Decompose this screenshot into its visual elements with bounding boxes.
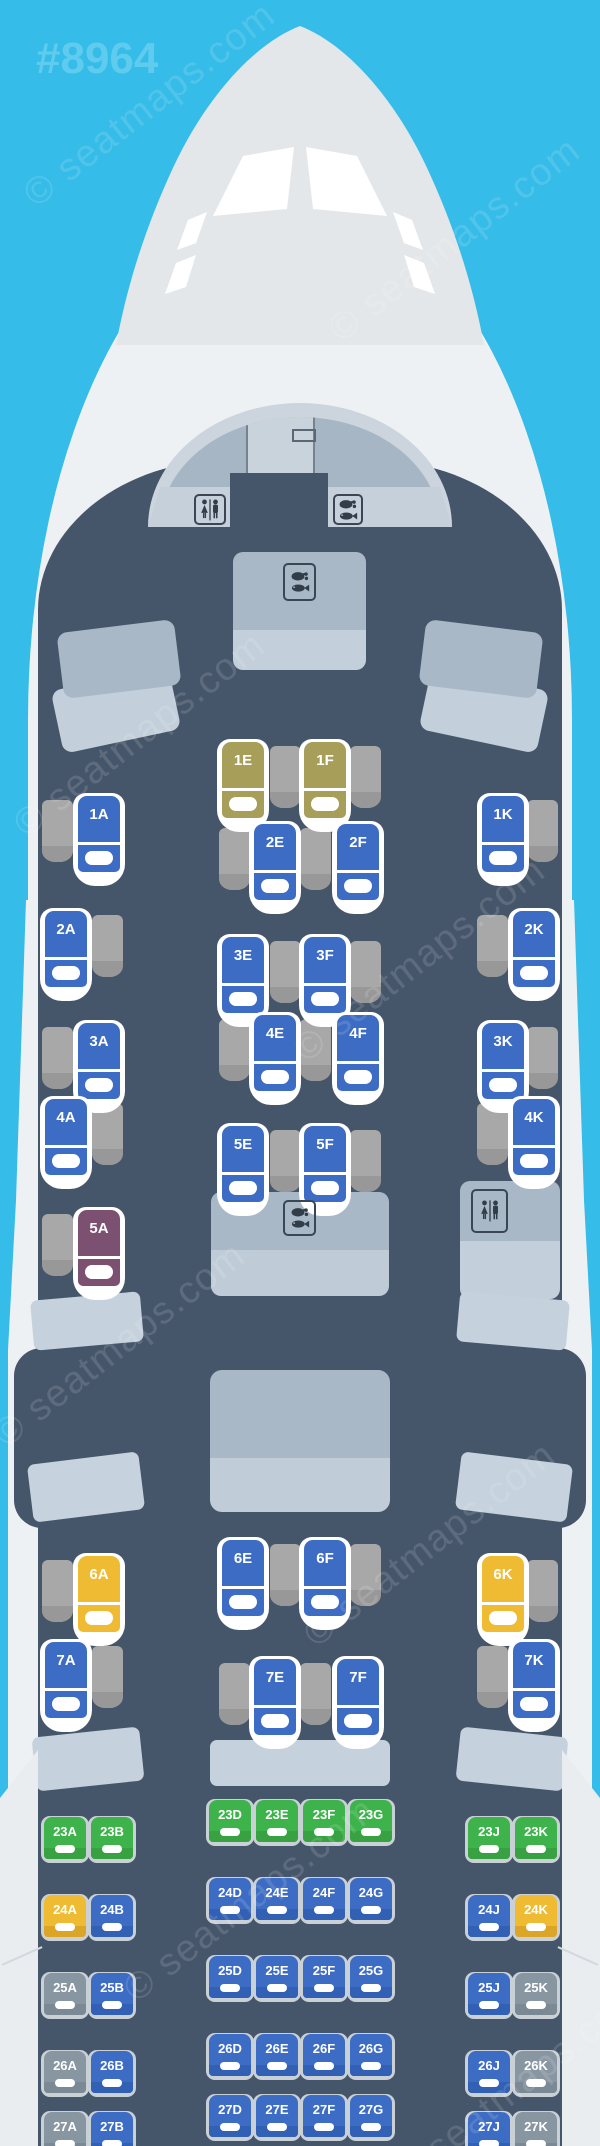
partition-right-mid (456, 1291, 570, 1350)
seat-26D[interactable]: 26D (209, 2034, 251, 2076)
seat-24E[interactable]: 24E (256, 1878, 298, 1920)
seat-label: 5A (78, 1220, 120, 1237)
seat-label: 6E (222, 1550, 264, 1567)
side-table (477, 1646, 508, 1708)
seat-3F[interactable]: 3F (304, 937, 346, 1013)
seat-27A[interactable]: 27A (44, 2112, 86, 2146)
seat-footrest (229, 797, 257, 811)
seat-tray (526, 2001, 546, 2009)
seat-7A[interactable]: 7A (45, 1642, 87, 1718)
seat-25F[interactable]: 25F (303, 1956, 345, 1998)
seat-23K[interactable]: 23K (515, 1817, 557, 1859)
seat-label: 23B (91, 1824, 133, 1839)
seat-footrest (261, 1070, 289, 1084)
seat-tray (55, 2079, 75, 2087)
seat-5F[interactable]: 5F (304, 1126, 346, 1202)
seat-label: 24K (515, 1902, 557, 1917)
seat-1F[interactable]: 1F (304, 742, 346, 818)
lavatory-sign (194, 494, 226, 525)
seat-3E[interactable]: 3E (222, 937, 264, 1013)
seat-label: 25B (91, 1980, 133, 1995)
seat-tray (361, 2123, 381, 2131)
seat-footrest (311, 1595, 339, 1609)
seat-24B[interactable]: 24B (91, 1895, 133, 1937)
entry-aisle (230, 473, 328, 529)
seat-label: 4K (513, 1109, 555, 1126)
seat-footrest (85, 1265, 113, 1279)
seat-26G[interactable]: 26G (350, 2034, 392, 2076)
seat-footrest (489, 1611, 517, 1625)
seat-label: 24J (468, 1902, 510, 1917)
door2-console-center (210, 1370, 390, 1458)
map-id: #8964 (36, 34, 158, 84)
seat-label: 1A (78, 806, 120, 823)
seat-label: 25A (44, 1980, 86, 1995)
seat-label: 27K (515, 2119, 557, 2134)
seat-26K[interactable]: 26K (515, 2051, 557, 2093)
seat-label: 5F (304, 1136, 346, 1153)
seat-tray (55, 1923, 75, 1931)
seat-footrest (229, 1181, 257, 1195)
seat-footrest (229, 992, 257, 1006)
seat-label: 23J (468, 1824, 510, 1839)
seat-27J[interactable]: 27J (468, 2112, 510, 2146)
seat-label: 4F (337, 1025, 379, 1042)
seat-label: 27D (209, 2102, 251, 2117)
seat-1E[interactable]: 1E (222, 742, 264, 818)
seat-label: 2F (337, 834, 379, 851)
seat-27B[interactable]: 27B (91, 2112, 133, 2146)
galley-food-icon (289, 1206, 311, 1230)
seat-tray (361, 1984, 381, 1992)
seat-label: 3F (304, 947, 346, 964)
seat-tray (479, 1923, 499, 1931)
seat-tray (361, 1828, 381, 1836)
seat-24G[interactable]: 24G (350, 1878, 392, 1920)
seat-7E[interactable]: 7E (254, 1659, 296, 1735)
door2-console-center-base (210, 1458, 390, 1512)
seat-2K[interactable]: 2K (513, 911, 555, 987)
seat-tray (314, 2123, 334, 2131)
seat-tray (526, 2079, 546, 2087)
wing-right (562, 1750, 600, 2146)
seat-1A[interactable]: 1A (78, 796, 120, 872)
seat-footrest (344, 1714, 372, 1728)
seat-label: 3A (78, 1033, 120, 1050)
seat-label: 25J (468, 1980, 510, 1995)
seat-label: 24F (303, 1885, 345, 1900)
seat-footrest (311, 992, 339, 1006)
side-table (527, 1560, 558, 1622)
seat-footrest (489, 851, 517, 865)
side-table (270, 1544, 301, 1606)
seat-tray (479, 2079, 499, 2087)
seat-26F[interactable]: 26F (303, 2034, 345, 2076)
seat-label: 23A (44, 1824, 86, 1839)
seat-footrest (85, 1611, 113, 1625)
seat-footrest (520, 1697, 548, 1711)
seat-tray (361, 2062, 381, 2070)
seat-label: 27E (256, 2102, 298, 2117)
seat-27F[interactable]: 27F (303, 2095, 345, 2137)
side-table (350, 1544, 381, 1606)
seat-26A[interactable]: 26A (44, 2051, 86, 2093)
seat-23J[interactable]: 23J (468, 1817, 510, 1859)
seat-label: 7F (337, 1669, 379, 1686)
seat-footrest (311, 1181, 339, 1195)
side-table (219, 828, 250, 890)
seat-25K[interactable]: 25K (515, 1973, 557, 2015)
seat-footrest (52, 1697, 80, 1711)
seat-25B[interactable]: 25B (91, 1973, 133, 2015)
seat-27K[interactable]: 27K (515, 2112, 557, 2146)
seat-label: 27G (350, 2102, 392, 2117)
seat-26J[interactable]: 26J (468, 2051, 510, 2093)
wing-left (0, 1750, 38, 2146)
seat-4F[interactable]: 4F (337, 1015, 379, 1091)
seat-label: 26K (515, 2058, 557, 2073)
seat-tray (314, 1906, 334, 1914)
seat-tray (55, 2001, 75, 2009)
front-galley-block-base (233, 630, 366, 670)
seat-tray (267, 1906, 287, 1914)
seat-footrest (261, 1714, 289, 1728)
seat-6E[interactable]: 6E (222, 1540, 264, 1616)
seat-tray (314, 1828, 334, 1836)
seat-label: 5E (222, 1136, 264, 1153)
seat-label: 26G (350, 2041, 392, 2056)
seat-tray (220, 1828, 240, 1836)
seat-24K[interactable]: 24K (515, 1895, 557, 1937)
seat-tray (220, 1906, 240, 1914)
side-table (300, 828, 331, 890)
side-table (527, 800, 558, 862)
seat-label: 25E (256, 1963, 298, 1978)
seat-footrest (344, 1070, 372, 1084)
side-table (270, 941, 301, 1003)
seat-footrest (520, 1154, 548, 1168)
seat-footrest (229, 1595, 257, 1609)
seat-5E[interactable]: 5E (222, 1126, 264, 1202)
seat-25D[interactable]: 25D (209, 1956, 251, 1998)
seat-26E[interactable]: 26E (256, 2034, 298, 2076)
partition-left-mid (30, 1291, 144, 1350)
seat-7K[interactable]: 7K (513, 1642, 555, 1718)
seat-label: 27J (468, 2119, 510, 2134)
side-table (477, 915, 508, 977)
seat-footrest (52, 966, 80, 980)
mid-galley-block-base (211, 1250, 389, 1296)
galley-food-icon (289, 570, 311, 594)
lavatory-block-right-base (460, 1241, 560, 1299)
seat-tray (479, 1845, 499, 1853)
seat-6K[interactable]: 6K (482, 1556, 524, 1632)
seat-tray (102, 1923, 122, 1931)
seat-label: 26E (256, 2041, 298, 2056)
seat-23E[interactable]: 23E (256, 1800, 298, 1842)
seat-6A[interactable]: 6A (78, 1556, 120, 1632)
seat-24J[interactable]: 24J (468, 1895, 510, 1937)
seat-5A[interactable]: 5A (78, 1210, 120, 1286)
seat-4E[interactable]: 4E (254, 1015, 296, 1091)
seat-25E[interactable]: 25E (256, 1956, 298, 1998)
seat-23B[interactable]: 23B (91, 1817, 133, 1859)
side-table (350, 941, 381, 1003)
seat-23A[interactable]: 23A (44, 1817, 86, 1859)
seat-footrest (52, 1154, 80, 1168)
seat-4A[interactable]: 4A (45, 1099, 87, 1175)
seat-label: 25G (350, 1963, 392, 1978)
seat-label: 1K (482, 806, 524, 823)
seat-label: 6A (78, 1566, 120, 1583)
seat-footrest (311, 797, 339, 811)
seat-2F[interactable]: 2F (337, 824, 379, 900)
seat-27E[interactable]: 27E (256, 2095, 298, 2137)
seat-label: 25D (209, 1963, 251, 1978)
seat-label: 2A (45, 921, 87, 938)
side-table (527, 1027, 558, 1089)
side-table (270, 1130, 301, 1192)
seat-23F[interactable]: 23F (303, 1800, 345, 1842)
seat-footrest (261, 879, 289, 893)
seat-23D[interactable]: 23D (209, 1800, 251, 1842)
seat-label: 2E (254, 834, 296, 851)
seat-label: 24E (256, 1885, 298, 1900)
lavatory-icon (479, 1199, 501, 1223)
seat-26B[interactable]: 26B (91, 2051, 133, 2093)
galley-food-icon (337, 498, 359, 522)
seat-label: 23G (350, 1807, 392, 1822)
seat-label: 23D (209, 1807, 251, 1822)
seat-tray (267, 1828, 287, 1836)
seat-label: 3E (222, 947, 264, 964)
seat-tray (220, 2123, 240, 2131)
seat-footrest (520, 966, 548, 980)
seat-label: 6K (482, 1566, 524, 1583)
seat-tray (526, 1923, 546, 1931)
seat-label: 27F (303, 2102, 345, 2117)
side-table (300, 1019, 331, 1081)
seat-4K[interactable]: 4K (513, 1099, 555, 1175)
seat-label: 25K (515, 1980, 557, 1995)
seat-label: 23F (303, 1807, 345, 1822)
seat-label: 26D (209, 2041, 251, 2056)
seat-tray (102, 2079, 122, 2087)
side-table (219, 1663, 250, 1725)
seat-label: 24G (350, 1885, 392, 1900)
seat-tray (479, 2001, 499, 2009)
seat-tray (55, 1845, 75, 1853)
door1-console-right (418, 619, 543, 699)
seat-label: 6F (304, 1550, 346, 1567)
seat-label: 26F (303, 2041, 345, 2056)
seat-tray (479, 2140, 499, 2146)
seat-tray (220, 1984, 240, 1992)
seat-24D[interactable]: 24D (209, 1878, 251, 1920)
seat-label: 3K (482, 1033, 524, 1050)
seat-24A[interactable]: 24A (44, 1895, 86, 1937)
side-table (350, 1130, 381, 1192)
seat-tray (314, 2062, 334, 2070)
seat-2A[interactable]: 2A (45, 911, 87, 987)
side-table (42, 1214, 73, 1276)
aft-partition-right (455, 1727, 568, 1792)
galley-sign (283, 1200, 316, 1236)
seat-label: 26B (91, 2058, 133, 2073)
seat-label: 2K (513, 921, 555, 938)
seat-label: 4E (254, 1025, 296, 1042)
lavatory-icon (199, 498, 221, 522)
side-table (270, 746, 301, 808)
lavatory-sign (471, 1189, 508, 1233)
seat-27G[interactable]: 27G (350, 2095, 392, 2137)
seat-25J[interactable]: 25J (468, 1973, 510, 2015)
seat-footrest (85, 1078, 113, 1092)
seat-label: 26A (44, 2058, 86, 2073)
seat-23G[interactable]: 23G (350, 1800, 392, 1842)
seat-tray (314, 1984, 334, 1992)
seat-6F[interactable]: 6F (304, 1540, 346, 1616)
side-table (350, 746, 381, 808)
seat-3K[interactable]: 3K (482, 1023, 524, 1099)
seat-label: 7E (254, 1669, 296, 1686)
side-table (92, 1646, 123, 1708)
seat-tray (102, 1845, 122, 1853)
galley-sign (333, 494, 363, 525)
seat-tray (526, 1845, 546, 1853)
seat-label: 1E (222, 752, 264, 769)
seat-tray (220, 2062, 240, 2070)
seat-3A[interactable]: 3A (78, 1023, 120, 1099)
side-table (92, 915, 123, 977)
seat-tray (267, 1984, 287, 1992)
side-table (300, 1663, 331, 1725)
seat-label: 4A (45, 1109, 87, 1126)
seat-1K[interactable]: 1K (482, 796, 524, 872)
side-table (42, 1027, 73, 1089)
seat-footrest (85, 851, 113, 865)
seatmap-canvas: 1E1F1A1K2E2F2A2K3E3F3A3K4E4F4A4K5E5F5A6E… (0, 0, 600, 2146)
seat-label: 24A (44, 1902, 86, 1917)
seat-7F[interactable]: 7F (337, 1659, 379, 1735)
seat-footrest (489, 1078, 517, 1092)
side-table (219, 1019, 250, 1081)
cockpit-door-handle (292, 429, 316, 442)
seat-2E[interactable]: 2E (254, 824, 296, 900)
seat-label: 7A (45, 1652, 87, 1669)
side-table (42, 1560, 73, 1622)
seat-27D[interactable]: 27D (209, 2095, 251, 2137)
galley-sign (283, 563, 316, 601)
seat-25G[interactable]: 25G (350, 1956, 392, 1998)
seat-label: 24D (209, 1885, 251, 1900)
side-table (42, 800, 73, 862)
seat-tray (55, 2140, 75, 2146)
seat-label: 1F (304, 752, 346, 769)
seat-label: 25F (303, 1963, 345, 1978)
seat-tray (102, 2140, 122, 2146)
seat-tray (361, 1906, 381, 1914)
seat-tray (267, 2062, 287, 2070)
seat-tray (526, 2140, 546, 2146)
seat-tray (267, 2123, 287, 2131)
seat-24F[interactable]: 24F (303, 1878, 345, 1920)
seat-25A[interactable]: 25A (44, 1973, 86, 2015)
seat-label: 27A (44, 2119, 86, 2134)
seat-footrest (344, 879, 372, 893)
seat-label: 26J (468, 2058, 510, 2073)
seat-label: 23K (515, 1824, 557, 1839)
seat-label: 24B (91, 1902, 133, 1917)
seat-label: 23E (256, 1807, 298, 1822)
seat-label: 7K (513, 1652, 555, 1669)
seat-label: 27B (91, 2119, 133, 2134)
aft-partition-left (31, 1727, 144, 1792)
seat-tray (102, 2001, 122, 2009)
